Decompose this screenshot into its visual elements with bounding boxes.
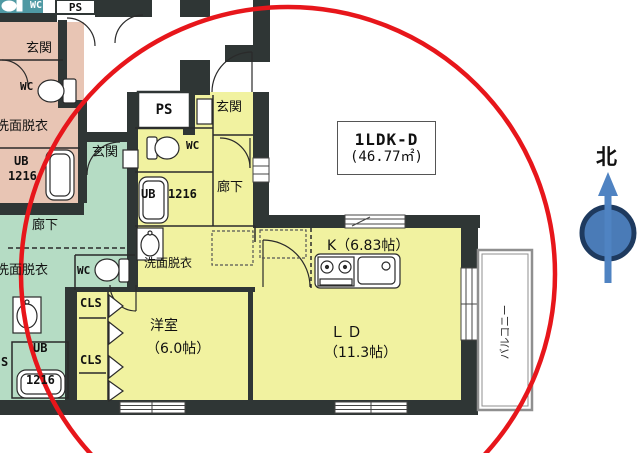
opening-corridor bbox=[253, 158, 269, 182]
closet2-label: CLS bbox=[80, 354, 102, 366]
pink-toilet-label: WC bbox=[20, 81, 33, 92]
green-washroom-label: 洗面脱衣 bbox=[0, 264, 48, 277]
north-compass bbox=[582, 172, 634, 283]
green-closet-partial-label: S bbox=[1, 356, 8, 368]
sink-icon bbox=[358, 257, 395, 284]
pink-entrance-label: 玄関 bbox=[26, 42, 52, 55]
main-washroom-label: 洗面脱衣 bbox=[144, 257, 192, 269]
green-bath-label: UB bbox=[33, 342, 47, 354]
living-dining-label: ＬＤ bbox=[330, 325, 364, 340]
main-toilet-label: WC bbox=[186, 140, 199, 151]
main-bath-size-label: 1216 bbox=[168, 188, 197, 200]
balcony-label: バルコニー bbox=[500, 305, 511, 360]
pink-washroom-label: 洗面脱衣 bbox=[0, 120, 48, 133]
closet1-label: CLS bbox=[80, 297, 102, 309]
window-bottom-right bbox=[335, 402, 407, 413]
main-hallway-label: 廊下 bbox=[217, 181, 243, 194]
green-toilet-label: WC bbox=[77, 265, 90, 276]
main-ps-label: PS bbox=[138, 92, 190, 128]
corridor-door-right bbox=[115, 15, 143, 43]
green-hallway-label: 廊下 bbox=[32, 219, 58, 232]
kitchen-label: K（6.83帖） bbox=[327, 239, 409, 253]
top-wc-label: WC bbox=[30, 1, 42, 11]
green-toilet-icon bbox=[95, 259, 129, 282]
top-ps-label: PS bbox=[56, 0, 95, 14]
north-label: 北 bbox=[596, 147, 617, 168]
unit-type-label: 1LDK-D bbox=[355, 132, 419, 148]
unit-area-label: (46.77㎡) bbox=[350, 150, 423, 164]
green-bath-size-label: 1216 bbox=[26, 374, 55, 386]
living-dining-size-label: （11.3帖） bbox=[324, 346, 397, 360]
main-shoe-box bbox=[197, 99, 212, 124]
floor-plan-drawing bbox=[0, 0, 640, 453]
pink-bath-size-label: 1216 bbox=[8, 170, 37, 182]
unit-type-box: 1LDK-D (46.77㎡) bbox=[337, 121, 436, 175]
main-entrance-label: 玄関 bbox=[216, 101, 242, 114]
compass-arrowhead-icon bbox=[598, 172, 618, 196]
balcony-sliding-door bbox=[461, 268, 478, 340]
window-kitchen bbox=[345, 215, 405, 228]
pink-toilet-icon bbox=[38, 79, 76, 103]
bedroom-label: 洋室 bbox=[150, 319, 178, 333]
green-shoe-box bbox=[123, 150, 138, 168]
window-bottom-left bbox=[120, 402, 185, 413]
main-bath-label: UB bbox=[141, 188, 155, 200]
top-toilet-icon bbox=[2, 0, 22, 11]
stove-icon bbox=[318, 257, 354, 286]
bedroom-size-label: （6.0帖） bbox=[146, 342, 210, 356]
pink-bath-label: UB bbox=[14, 155, 28, 167]
floor-plan: WC PS 玄関 WC 洗面脱衣 UB 1216 玄関 廊下 洗面脱衣 WC U… bbox=[0, 0, 640, 453]
green-entrance-label: 玄関 bbox=[92, 146, 118, 159]
main-toilet-icon bbox=[147, 137, 179, 159]
